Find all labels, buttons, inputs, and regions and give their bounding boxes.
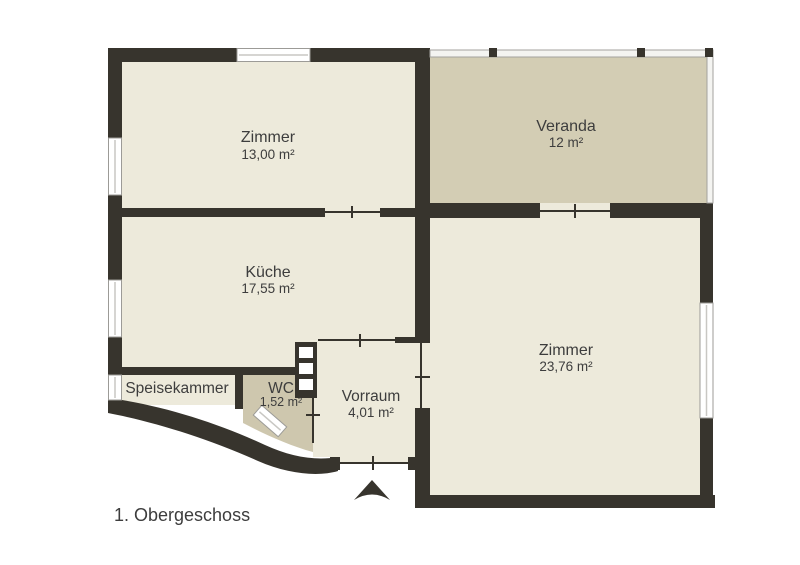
wall-speisekammer-top bbox=[108, 367, 317, 375]
veranda-post-corner bbox=[705, 48, 713, 57]
chimney-flue-2 bbox=[299, 363, 313, 374]
floorplan: Zimmer 13,00 m² Veranda 12 m² Küche 17,5… bbox=[0, 0, 800, 565]
label-kueche-name: Küche bbox=[245, 264, 290, 281]
wall-center-upper bbox=[415, 48, 430, 208]
label-veranda-area: 12 m² bbox=[549, 135, 584, 150]
label-zimmer1-name: Zimmer bbox=[241, 129, 296, 146]
wall-divider-right bbox=[380, 208, 415, 217]
chimney-flue-3 bbox=[299, 379, 313, 390]
wall-left-2 bbox=[108, 195, 122, 280]
window-left-1-icon bbox=[109, 138, 122, 195]
wall-zimmer2-left bbox=[415, 408, 430, 495]
wall-center-lower bbox=[415, 203, 430, 343]
label-vorraum-area: 4,01 m² bbox=[348, 405, 394, 420]
wall-vorraum-top-stub bbox=[395, 337, 415, 343]
veranda-glass-right bbox=[707, 50, 713, 203]
door-entrance-icon bbox=[340, 456, 408, 470]
label-speisekammer-name: Speisekammer bbox=[125, 380, 228, 397]
wall-left-3 bbox=[108, 337, 122, 367]
chimney bbox=[295, 342, 317, 398]
wall-bottom bbox=[415, 495, 715, 508]
label-zimmer1-area: 13,00 m² bbox=[241, 147, 295, 162]
label-zimmer2-area: 23,76 m² bbox=[539, 359, 593, 374]
wall-speisekammer-wc bbox=[235, 375, 243, 409]
wall-divider-left bbox=[108, 208, 325, 217]
label-veranda-name: Veranda bbox=[536, 118, 596, 135]
chimney-flue-1 bbox=[299, 347, 313, 358]
label-vorraum-name: Vorraum bbox=[342, 388, 401, 405]
veranda-post-2 bbox=[637, 48, 645, 57]
wall-right-1 bbox=[700, 203, 713, 303]
wall-right-2 bbox=[700, 418, 713, 508]
window-top-icon bbox=[237, 49, 310, 62]
door-vorraum-zimmer2-icon bbox=[415, 343, 430, 408]
veranda-post-1 bbox=[489, 48, 497, 57]
door-veranda-zimmer2-icon bbox=[540, 203, 610, 218]
label-wc-area: 1,52 m² bbox=[260, 395, 302, 409]
wall-top-right bbox=[310, 48, 430, 62]
wall-left-1 bbox=[108, 48, 122, 138]
wall-veranda-south-left bbox=[415, 203, 540, 218]
label-kueche-area: 17,55 m² bbox=[241, 281, 295, 296]
entrance-arrow-icon bbox=[354, 480, 390, 500]
veranda-glass-top bbox=[430, 50, 707, 57]
wall-entrance-cap-right bbox=[408, 457, 430, 470]
window-left-3-icon bbox=[109, 375, 122, 400]
label-zimmer2-name: Zimmer bbox=[539, 342, 594, 359]
window-right-icon bbox=[700, 303, 713, 418]
floor-label: 1. Obergeschoss bbox=[114, 505, 250, 525]
wall-veranda-south-right bbox=[610, 203, 713, 218]
wall-top-left bbox=[108, 48, 237, 62]
window-left-2-icon bbox=[109, 280, 122, 337]
